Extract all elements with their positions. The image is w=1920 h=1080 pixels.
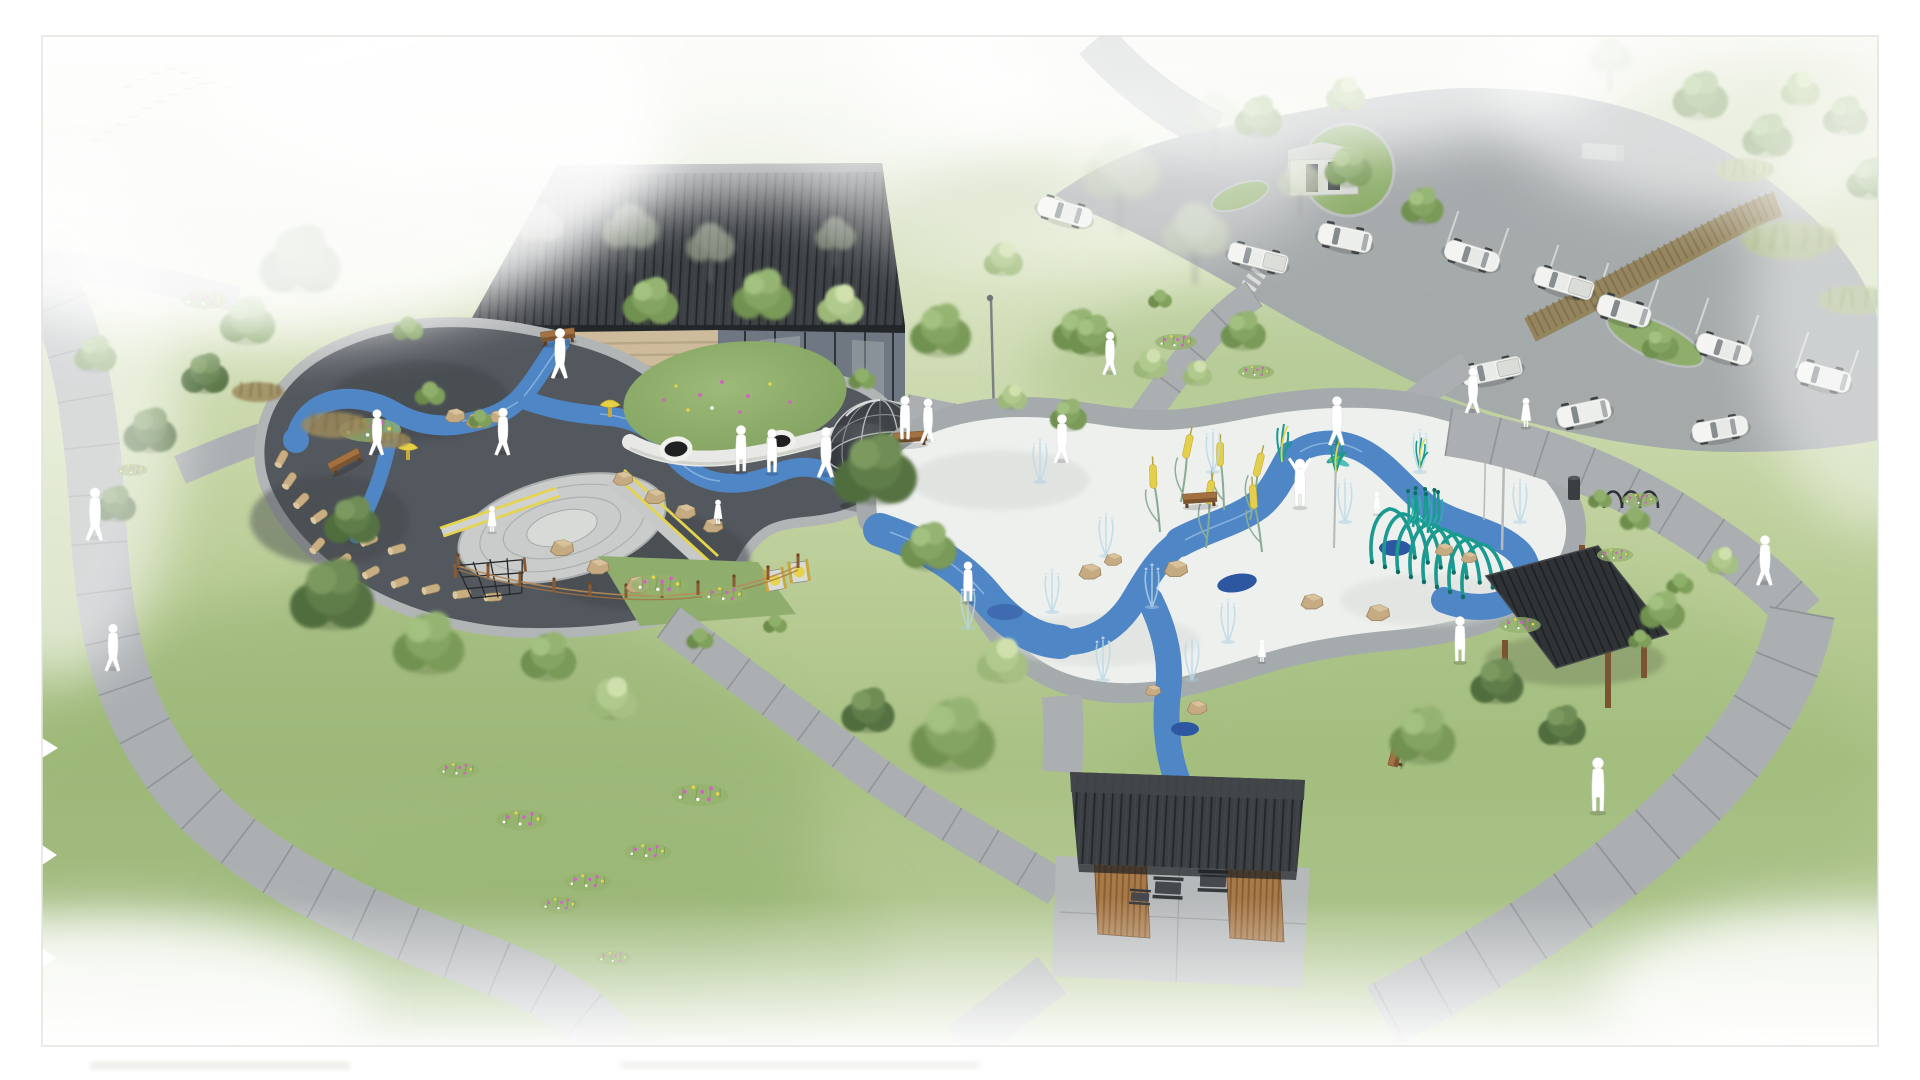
flowers: [496, 810, 548, 830]
rendering-canvas: [0, 0, 1920, 1080]
scan-smudge: [90, 1062, 350, 1069]
tunnel-opening: [661, 437, 691, 460]
scrub: [301, 412, 369, 438]
fencepost: [518, 571, 521, 586]
flowers: [631, 574, 688, 596]
flowers: [1155, 334, 1197, 350]
fencepost: [696, 580, 699, 595]
fencepost: [766, 565, 769, 580]
trash-can: [1568, 476, 1580, 500]
flowers: [1597, 548, 1633, 562]
fencepost: [796, 553, 799, 568]
picnic: [1152, 876, 1183, 900]
flowers: [1238, 365, 1274, 379]
flowers: [437, 762, 479, 778]
flowers: [702, 586, 749, 604]
flowers: [1499, 617, 1541, 633]
flowers: [671, 784, 728, 806]
fencepost: [588, 581, 591, 596]
flowers: [565, 873, 612, 891]
fencepost: [552, 577, 555, 592]
scrub: [232, 382, 284, 402]
park-rendering: [0, 0, 1920, 1080]
fencepost: [456, 553, 459, 568]
flowers: [625, 843, 672, 861]
flowers: [1622, 493, 1658, 507]
fencepost: [486, 563, 489, 578]
